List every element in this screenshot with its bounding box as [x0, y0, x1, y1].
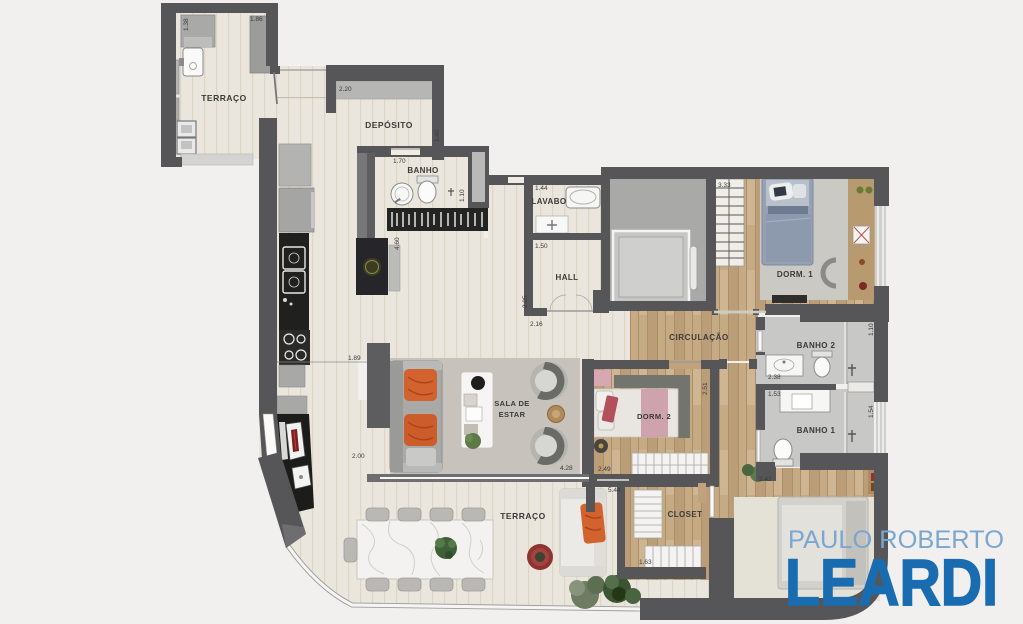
- svg-text:1.50: 1.50: [535, 243, 548, 250]
- svg-text:1.89: 1.89: [348, 355, 361, 362]
- svg-text:1.38: 1.38: [183, 18, 190, 31]
- svg-text:2.20: 2.20: [339, 86, 352, 93]
- svg-text:SALA DE: SALA DE: [494, 399, 529, 408]
- svg-text:1.10: 1.10: [459, 189, 466, 202]
- svg-text:CIRCULAÇÃO: CIRCULAÇÃO: [669, 333, 729, 342]
- svg-text:2.51: 2.51: [702, 382, 709, 395]
- svg-text:ESTAR: ESTAR: [499, 410, 526, 419]
- svg-text:2.16: 2.16: [530, 321, 543, 328]
- svg-text:2.49: 2.49: [598, 466, 611, 473]
- svg-text:1.44: 1.44: [535, 185, 548, 192]
- svg-text:TERRAÇO: TERRAÇO: [201, 93, 247, 103]
- svg-text:2.05: 2.05: [522, 295, 529, 308]
- svg-text:BANHO: BANHO: [407, 166, 438, 175]
- svg-text:1.10: 1.10: [868, 323, 875, 336]
- svg-text:3.33: 3.33: [718, 182, 731, 189]
- svg-text:BANHO 2: BANHO 2: [797, 341, 836, 350]
- svg-text:5.44: 5.44: [608, 487, 621, 494]
- svg-text:BANHO 1: BANHO 1: [797, 426, 836, 435]
- svg-text:2.38: 2.38: [768, 374, 781, 381]
- svg-text:2.42: 2.42: [759, 476, 772, 483]
- svg-text:1.86: 1.86: [250, 16, 263, 23]
- svg-text:HALL: HALL: [556, 273, 579, 282]
- svg-text:TERRAÇO: TERRAÇO: [500, 511, 546, 521]
- svg-text:DORM. 2: DORM. 2: [637, 412, 671, 421]
- svg-text:1.70: 1.70: [393, 158, 406, 165]
- svg-text:2.00: 2.00: [352, 453, 365, 460]
- svg-text:1.53: 1.53: [768, 391, 781, 398]
- svg-text:LAVABO: LAVABO: [532, 197, 567, 206]
- svg-text:1.63: 1.63: [639, 559, 652, 566]
- svg-text:LEARDI: LEARDI: [785, 545, 998, 619]
- svg-text:DEPÓSITO: DEPÓSITO: [365, 119, 413, 130]
- svg-text:1.40: 1.40: [434, 129, 441, 142]
- svg-text:CLOSET: CLOSET: [668, 510, 703, 519]
- svg-text:1.54: 1.54: [868, 405, 875, 418]
- svg-text:4.28: 4.28: [560, 465, 573, 472]
- svg-text:4.60: 4.60: [394, 237, 401, 250]
- svg-text:DORM. 1: DORM. 1: [777, 270, 813, 279]
